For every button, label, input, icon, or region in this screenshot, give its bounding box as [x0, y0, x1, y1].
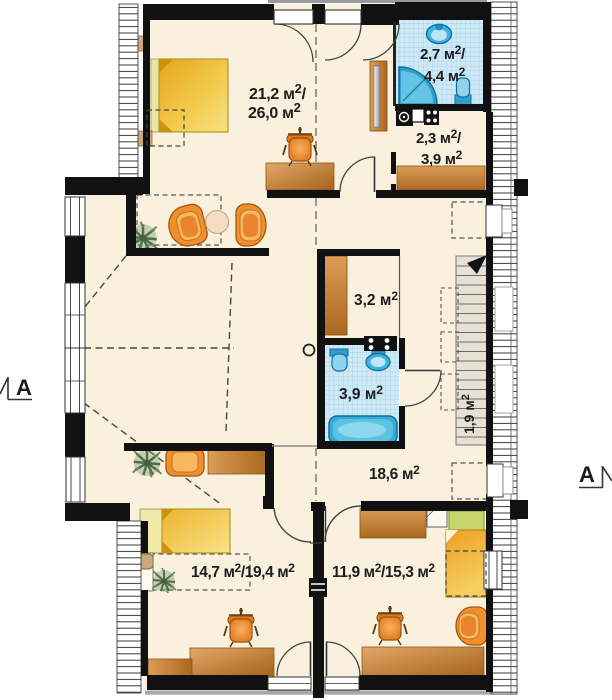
svg-text:A: A: [16, 375, 32, 400]
svg-text:14,7 м2/19,4 м2: 14,7 м2/19,4 м2: [191, 561, 295, 581]
svg-text:18,6 м2: 18,6 м2: [369, 463, 420, 483]
svg-text:A: A: [579, 462, 595, 487]
svg-text:11,9 м2/15,3 м2: 11,9 м2/15,3 м2: [332, 561, 435, 581]
